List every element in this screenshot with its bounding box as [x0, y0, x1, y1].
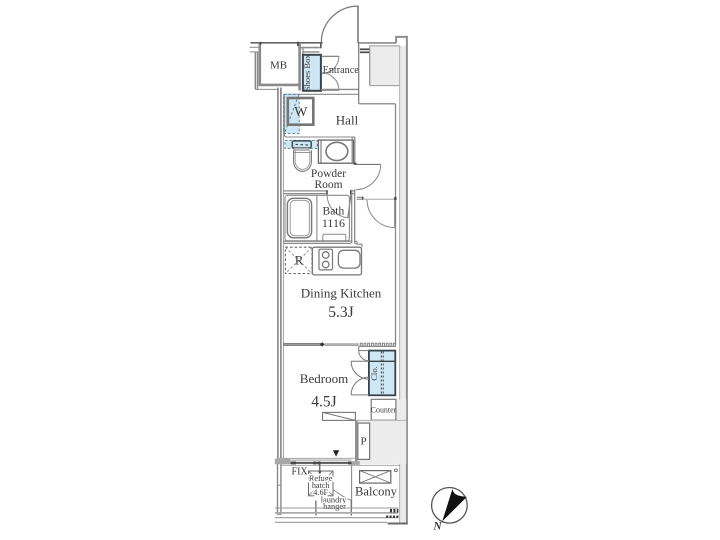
svg-text:1116: 1116 — [322, 216, 345, 230]
svg-text:Room: Room — [314, 179, 342, 191]
svg-text:Clo.: Clo. — [369, 366, 379, 381]
svg-text:R: R — [295, 254, 304, 268]
svg-text:Shoes Box: Shoes Box — [302, 54, 312, 92]
svg-text:FIX: FIX — [292, 466, 309, 477]
svg-text:P: P — [361, 436, 367, 448]
svg-text:Balcony: Balcony — [355, 485, 398, 499]
svg-text:hanger: hanger — [323, 502, 346, 511]
svg-text:MB: MB — [270, 60, 287, 72]
svg-text:4.5J: 4.5J — [311, 393, 336, 410]
svg-text:Hall: Hall — [336, 113, 359, 128]
svg-text:Dining Kitchen: Dining Kitchen — [301, 285, 382, 300]
svg-text:5.3J: 5.3J — [328, 304, 353, 321]
svg-text:Entrance: Entrance — [323, 65, 360, 76]
svg-text:Counter: Counter — [371, 405, 397, 414]
svg-text:W: W — [294, 105, 308, 120]
svg-text:Bedroom: Bedroom — [300, 371, 348, 386]
svg-text:N: N — [432, 521, 442, 533]
